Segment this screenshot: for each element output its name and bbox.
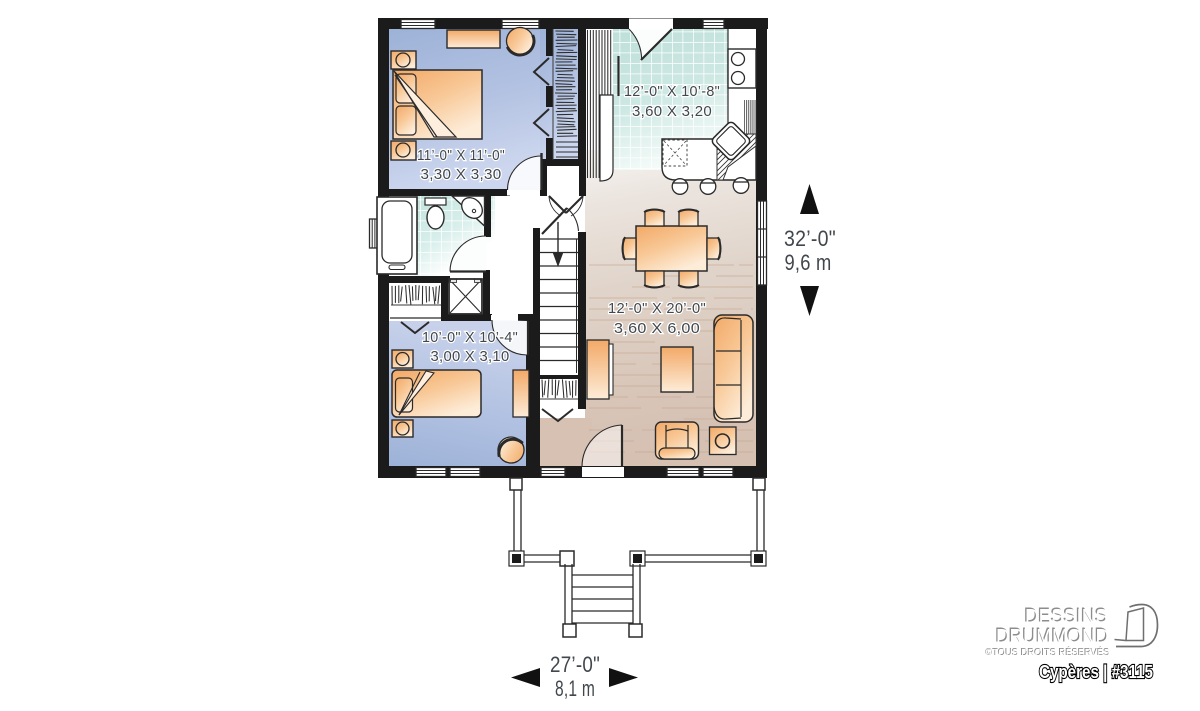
- svg-text:12’-0" X 20’-0": 12’-0" X 20’-0": [608, 300, 706, 317]
- svg-text:11’-0" X 11’-0": 11’-0" X 11’-0": [417, 147, 505, 164]
- svg-text:3,00 X 3,10: 3,00 X 3,10: [431, 348, 510, 365]
- svg-text:12’-0" X 10’-8": 12’-0" X 10’-8": [624, 83, 720, 100]
- svg-text:3,60 X 3,20: 3,60 X 3,20: [632, 103, 712, 120]
- svg-text:DRUMMOND: DRUMMOND: [996, 626, 1109, 648]
- svg-text:8,1 m: 8,1 m: [555, 676, 595, 701]
- svg-text:32’-0": 32’-0": [784, 226, 836, 251]
- svg-text:3,30 X 3,30: 3,30 X 3,30: [421, 166, 502, 183]
- svg-text:Cypères | #3115: Cypères | #3115: [1039, 661, 1153, 682]
- svg-text:DESSINS: DESSINS: [1025, 606, 1108, 628]
- svg-text:27’-0": 27’-0": [550, 652, 600, 677]
- svg-text:©TOUS DROITS RÉSERVÉS: ©TOUS DROITS RÉSERVÉS: [986, 646, 1110, 659]
- svg-text:3,60 X 6,00: 3,60 X 6,00: [614, 320, 700, 337]
- svg-text:9,6 m: 9,6 m: [785, 250, 832, 275]
- svg-text:10’-0" X 10’-4": 10’-0" X 10’-4": [422, 329, 518, 346]
